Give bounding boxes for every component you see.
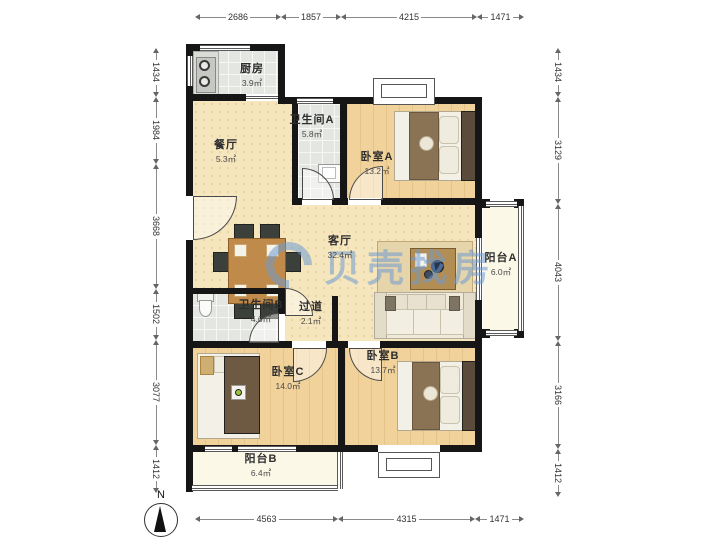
wall [186, 44, 193, 452]
room-name: 卧室C [257, 366, 319, 379]
window [238, 446, 296, 452]
dimension-left-6: 1412 [150, 445, 162, 493]
door-opening [292, 341, 326, 348]
dim-value: 1471 [488, 12, 512, 22]
floor-plan: 厨房 3.9㎡ 餐厅 5.3㎡ 卫生间A 5.8㎡ 卧室A 13.2㎡ 客厅 3… [0, 0, 720, 540]
dim-line [156, 327, 157, 335]
dim-value: 1434 [553, 60, 563, 84]
bay-window-bedroom-a [373, 78, 435, 105]
dimension-top-1: 2686 [195, 12, 281, 22]
dimension-left-4: 1502 [150, 289, 162, 340]
dim-line [250, 17, 276, 18]
dim-value: 3129 [553, 138, 563, 162]
bed-a-headboard [461, 111, 476, 181]
dim-line [558, 285, 559, 336]
dim-value: 3077 [151, 380, 161, 404]
label-bedroom-b: 卧室B 13.7㎡ [352, 350, 414, 376]
dimension-top-3: 4215 [341, 12, 477, 22]
bed-c-pillow [200, 356, 214, 375]
dim-value: 4043 [553, 260, 563, 284]
dim-line [558, 85, 559, 92]
dim-line [346, 17, 397, 18]
window [200, 45, 250, 51]
room-area: 32.4㎡ [309, 249, 371, 261]
room-name: 卫生间A [281, 114, 343, 127]
sofa-cushion [426, 294, 446, 310]
sofa-pillow [449, 296, 460, 311]
dim-line [558, 163, 559, 199]
dimension-bottom-1: 4563 [195, 514, 338, 524]
sofa-seat [386, 309, 414, 335]
dimension-left-2: 1984 [150, 97, 162, 164]
dim-value: 4215 [397, 12, 421, 22]
label-balcony-b: 阳台B 6.4㎡ [228, 453, 294, 479]
window [187, 56, 193, 86]
dimension-right-2: 3129 [552, 97, 564, 204]
room-name: 餐厅 [196, 139, 256, 152]
wall [186, 94, 246, 101]
dimension-right-3: 4043 [552, 204, 564, 341]
bed-a-round-pillow [419, 136, 434, 151]
room-area: 14.0㎡ [257, 380, 319, 392]
label-hallway: 过道 2.1㎡ [288, 301, 334, 327]
dim-line [558, 346, 559, 383]
bed-b-pillow [440, 366, 460, 394]
bay-window-inner [381, 84, 427, 98]
dim-line [156, 102, 157, 118]
room-area: 6.0㎡ [471, 266, 531, 278]
dim-line [156, 450, 157, 457]
bed-b-round-pillow [423, 386, 438, 401]
toilet-bowl [199, 300, 212, 317]
dim-line [286, 17, 299, 18]
sofa-pillow [385, 296, 396, 311]
door-opening [348, 341, 380, 348]
dim-value: 1857 [299, 12, 323, 22]
wall [338, 341, 345, 452]
dim-line [558, 454, 559, 461]
dim-line [558, 407, 559, 444]
watermark: 贝壳找房 [266, 238, 496, 292]
balcony-a-window [486, 201, 517, 207]
dimension-left-3: 3668 [150, 164, 162, 289]
room-name: 过道 [288, 301, 334, 314]
label-bedroom-a: 卧室A 13.2㎡ [346, 151, 408, 177]
kitchen-sliding-door [246, 94, 278, 101]
bed-a-pillow [439, 146, 459, 174]
room-area: 5.3㎡ [196, 153, 256, 165]
dim-line [480, 519, 487, 520]
room-name: 卧室A [346, 151, 408, 164]
room-area: 5.8㎡ [281, 128, 343, 140]
dim-line [156, 294, 157, 302]
dimension-top-2: 1857 [281, 12, 341, 22]
dim-line [156, 345, 157, 380]
room-name: 卫生间B [228, 299, 294, 312]
room-name: 卧室B [352, 350, 414, 363]
dim-value: 1471 [487, 514, 511, 524]
room-name: 厨房 [222, 63, 282, 76]
dim-value: 3668 [151, 214, 161, 238]
room-area: 4.6㎡ [228, 313, 294, 325]
dim-line [156, 85, 157, 92]
label-kitchen: 厨房 3.9㎡ [222, 63, 282, 89]
entrance-opening [186, 196, 193, 240]
dimension-right-1: 1434 [552, 48, 564, 97]
sofa-seat [413, 309, 441, 335]
sofa-seat [440, 309, 464, 335]
dim-value: 4563 [254, 514, 278, 524]
dimension-left-1: 1434 [150, 48, 162, 97]
wall [475, 97, 482, 238]
dim-line [156, 239, 157, 284]
compass-arrow-icon [154, 506, 166, 532]
bed-b-pillow [440, 396, 460, 424]
plate [234, 244, 247, 257]
bay-window-inner [386, 458, 432, 471]
dim-value: 1412 [553, 461, 563, 485]
dim-value: 2686 [226, 12, 250, 22]
dim-line [419, 519, 470, 520]
dim-line [156, 169, 157, 214]
dimension-left-5: 3077 [150, 340, 162, 445]
dim-arrow [519, 516, 524, 522]
label-bedroom-c: 卧室C 14.0㎡ [257, 366, 319, 392]
dimension-right-5: 1412 [552, 449, 564, 497]
dim-line [558, 53, 559, 60]
room-area: 13.7㎡ [352, 364, 414, 376]
dimension-bottom-3: 1471 [475, 514, 524, 524]
dim-value: 3166 [553, 383, 563, 407]
label-bath-b: 卫生间B 4.6㎡ [228, 299, 294, 325]
label-living: 客厅 32.4㎡ [309, 235, 371, 261]
room-name: 客厅 [309, 235, 371, 248]
room-area: 13.2㎡ [346, 165, 408, 177]
label-bath-a: 卫生间A 5.8㎡ [281, 114, 343, 140]
dim-value: 1412 [151, 457, 161, 481]
stove-burner [199, 60, 210, 71]
dim-line [200, 519, 254, 520]
dimension-bottom-2: 4315 [338, 514, 475, 524]
dimension-top-4: 1471 [477, 12, 524, 22]
dim-line [343, 519, 394, 520]
window [205, 446, 232, 452]
dim-line [156, 405, 157, 440]
room-area: 6.4㎡ [228, 467, 294, 479]
room-name: 阳台A [471, 252, 531, 265]
dim-arrow [519, 14, 524, 20]
balcony-b-window [337, 452, 343, 489]
dim-value: 1502 [151, 302, 161, 326]
dim-line [558, 209, 559, 260]
room-area: 3.9㎡ [222, 77, 282, 89]
dimension-right-4: 3166 [552, 341, 564, 449]
dim-value: 1984 [151, 118, 161, 142]
dim-line [558, 102, 559, 138]
room-name: 阳台B [228, 453, 294, 466]
room-area: 2.1㎡ [288, 315, 334, 327]
bay-opening [378, 445, 440, 452]
stove-burner [199, 76, 210, 87]
dim-line [156, 481, 157, 488]
balcony-a-window [486, 330, 517, 336]
dim-line [323, 17, 336, 18]
bed-c-decor-dot [235, 389, 242, 396]
dim-line [558, 485, 559, 492]
dim-line [279, 519, 333, 520]
sofa-cushion [407, 294, 427, 310]
balcony-b-window [192, 485, 338, 491]
dim-arrow [555, 492, 561, 497]
dim-value: 1434 [151, 60, 161, 84]
compass-north-label: N [150, 489, 172, 501]
dim-line [156, 53, 157, 60]
dim-line [200, 17, 226, 18]
window [297, 98, 333, 104]
label-balcony-a: 阳台A 6.0㎡ [471, 252, 531, 278]
dim-line [512, 519, 519, 520]
bed-a-pillow [439, 116, 459, 144]
wall [475, 300, 482, 452]
label-dining: 餐厅 5.3㎡ [196, 139, 256, 165]
dim-value: 4315 [394, 514, 418, 524]
dim-line [156, 143, 157, 159]
dim-line [421, 17, 472, 18]
bay-window-bedroom-b [378, 452, 440, 478]
